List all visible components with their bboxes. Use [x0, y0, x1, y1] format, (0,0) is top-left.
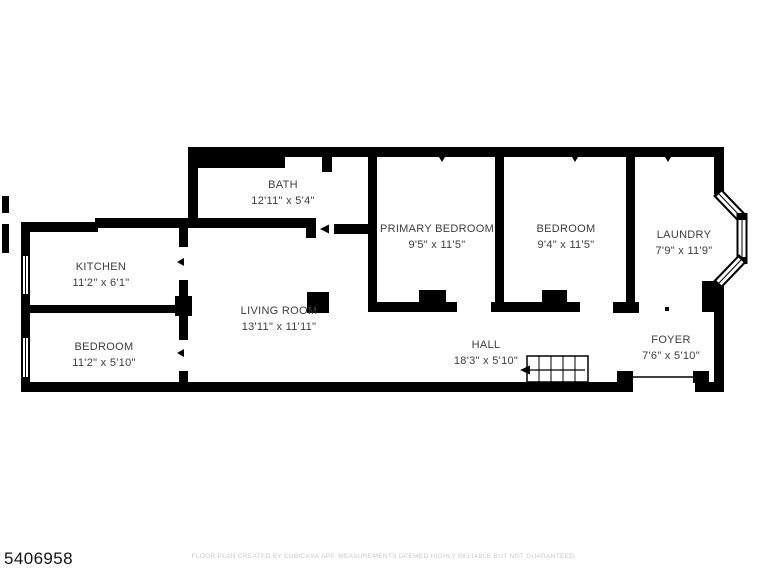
stairs: [520, 356, 588, 382]
floor-plan: BATH 12'11" x 5'4" KITCHEN 11'2" x 6'1" …: [0, 0, 768, 576]
neighbor-wall-stub: [2, 196, 9, 213]
wall: [188, 218, 316, 228]
wall: [188, 147, 285, 168]
room-name: LAUNDRY: [656, 228, 713, 244]
room-label-living-room: LIVING ROOM 13'11" x 11'11": [241, 304, 318, 335]
room-label-bath: BATH 12'11" x 5'4": [251, 178, 314, 209]
room-name: PRIMARY BEDROOM: [380, 222, 494, 238]
wall: [306, 218, 316, 238]
wall: [695, 382, 724, 392]
room-name: BEDROOM: [537, 222, 596, 238]
room-dimensions: 9'4" x 11'5": [537, 238, 596, 254]
wall: [21, 294, 30, 338]
door-tick: [439, 157, 445, 162]
wall: [495, 147, 504, 312]
wall: [613, 302, 639, 313]
room-label-laundry: LAUNDRY 7'9" x 11'9": [656, 228, 713, 259]
window-pane: [719, 260, 741, 283]
wall: [188, 147, 198, 227]
room-dimensions: 7'9" x 11'9": [656, 244, 713, 260]
entry-jamb: [693, 371, 709, 383]
room-dimensions: 11'2" x 6'1": [73, 276, 130, 292]
wall: [322, 155, 332, 172]
wall: [21, 222, 30, 256]
wall: [95, 218, 188, 228]
door-tick: [177, 258, 184, 266]
door-tick: [572, 157, 578, 162]
room-name: HALL: [454, 338, 518, 354]
room-dimensions: 7'6" x 5'10": [642, 349, 700, 365]
wall: [626, 147, 635, 313]
wall: [21, 382, 633, 392]
room-name: BEDROOM: [72, 340, 135, 356]
door-tick: [665, 157, 671, 162]
room-dimensions: 9'5" x 11'5": [380, 238, 494, 254]
room-dimensions: 12'11" x 5'4": [251, 194, 314, 210]
wall: [714, 309, 724, 391]
room-name: BATH: [251, 178, 314, 194]
wall: [21, 305, 181, 313]
wall: [368, 302, 457, 312]
room-dimensions: 11'2" x 5'10": [72, 356, 135, 372]
wall: [175, 296, 192, 316]
room-name: LIVING ROOM: [241, 304, 318, 320]
door-tick: [320, 225, 329, 234]
room-label-hall: HALL 18'3" x 5'10": [454, 338, 518, 369]
stairs-arrowhead: [520, 366, 530, 375]
room-label-foyer: FOYER 7'6" x 5'10": [642, 333, 700, 364]
room-name: KITCHEN: [73, 260, 130, 276]
wall: [334, 224, 372, 234]
room-label-primary-bedroom: PRIMARY BEDROOM 9'5" x 11'5": [380, 222, 494, 253]
room-dimensions: 18'3" x 5'10": [454, 354, 518, 370]
wall: [714, 147, 724, 194]
room-label-kitchen: KITCHEN 11'2" x 6'1": [73, 260, 130, 291]
wall: [179, 371, 188, 392]
door-tick: [665, 307, 669, 311]
doorway-casing: [542, 290, 567, 303]
wall: [179, 222, 188, 247]
room-label-bedroom-right: BEDROOM 9'4" x 11'5": [537, 222, 596, 253]
room-name: FOYER: [642, 333, 700, 349]
door-tick: [177, 349, 184, 357]
wall: [491, 302, 580, 312]
disclaimer-text: FLOOR PLAN CREATED BY CUBICASA APP. MEAS…: [0, 553, 768, 560]
room-dimensions: 13'11" x 11'11": [241, 320, 318, 336]
bay-window: [717, 192, 743, 285]
wall: [21, 222, 98, 232]
neighbor-wall-stub: [2, 224, 9, 253]
doorway-casing: [419, 290, 446, 303]
room-label-bedroom-left: BEDROOM 11'2" x 5'10": [72, 340, 135, 371]
entry-jamb: [617, 371, 633, 383]
